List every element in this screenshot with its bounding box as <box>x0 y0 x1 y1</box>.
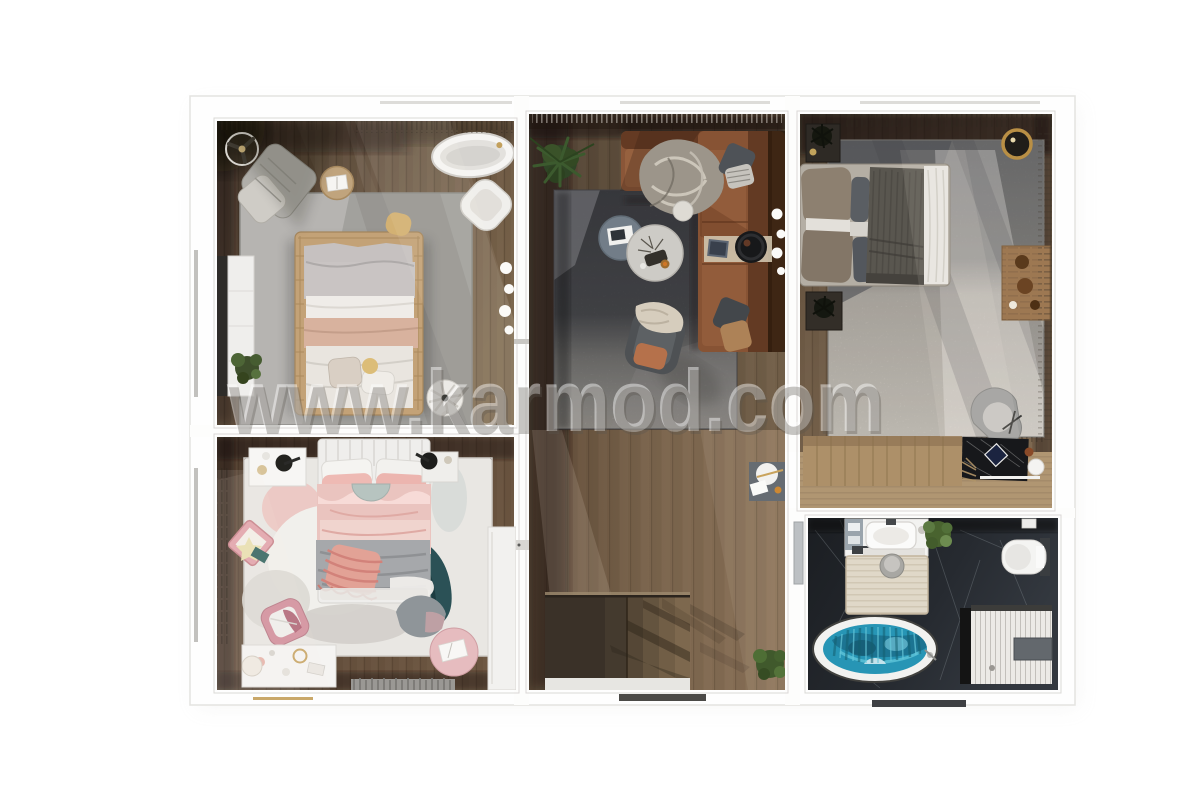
svg-text:www.karmod.com: www.karmod.com <box>228 354 886 453</box>
